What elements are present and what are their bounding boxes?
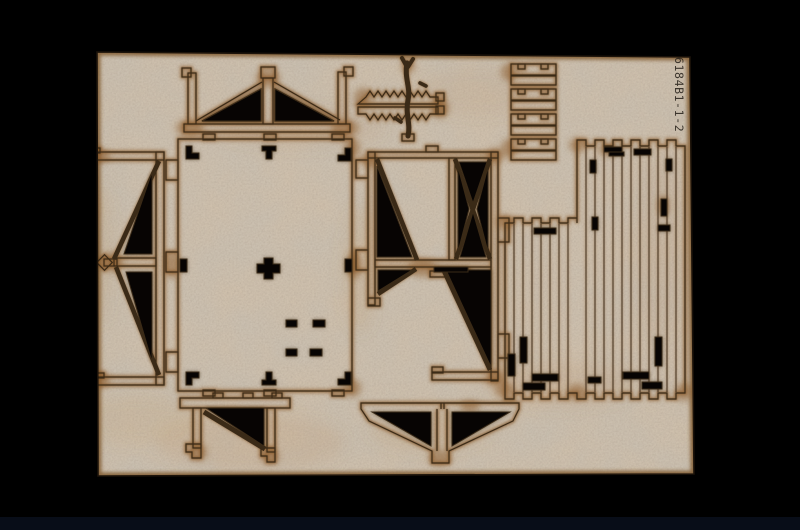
laser-cut-board: 6184B1-1-2 (75, 52, 694, 476)
sheet-photo-svg: 6184B1-1-2 (0, 0, 800, 530)
photo-laser-cut-sheet: 6184B1-1-2 (0, 0, 800, 530)
photo-bottom-strip (0, 517, 800, 530)
sheet-code-label: 6184B1-1-2 (672, 57, 686, 132)
